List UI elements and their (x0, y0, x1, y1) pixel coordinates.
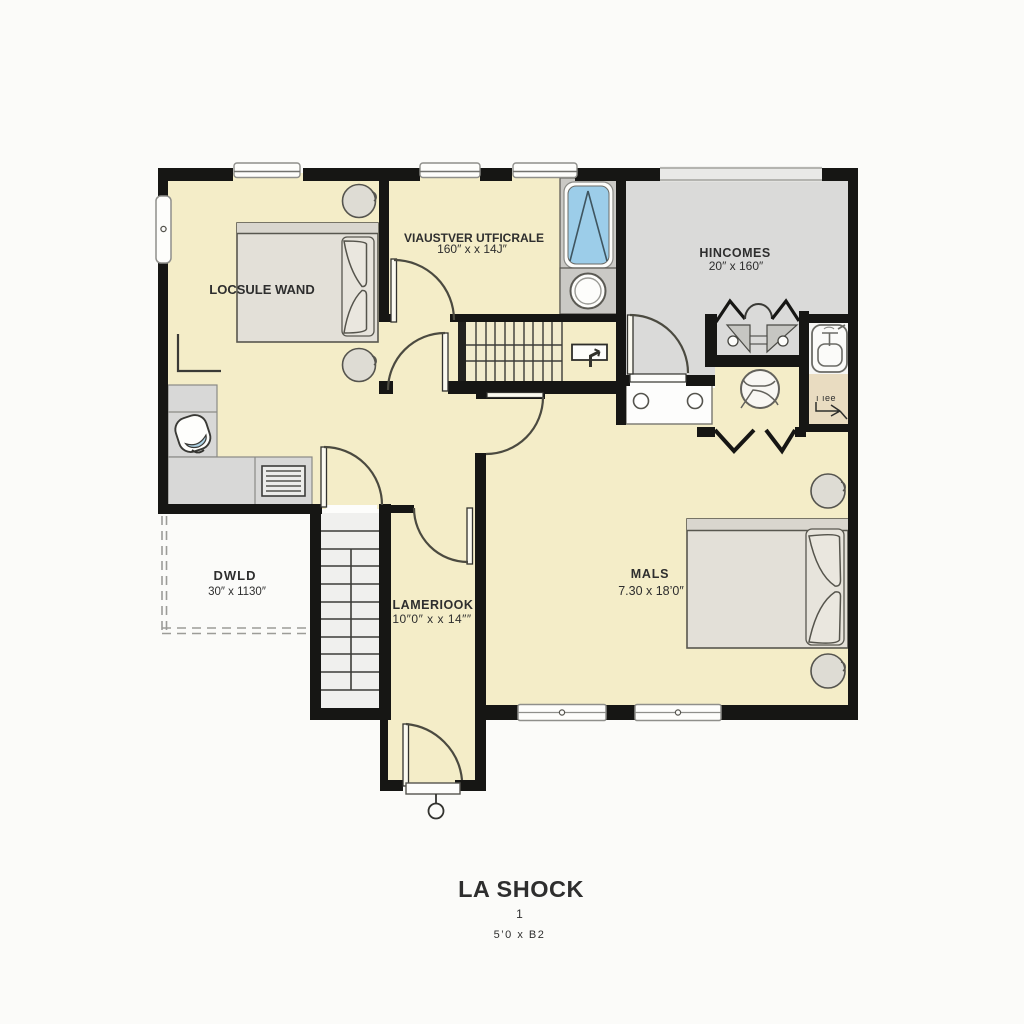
svg-text:7.30 x 18’0″: 7.30 x 18’0″ (618, 584, 684, 598)
svg-text:20″ x 160″: 20″ x 160″ (709, 259, 764, 273)
svg-text:LAMERIOOK: LAMERIOOK (393, 598, 474, 612)
svg-text:5’0 x B2: 5’0 x B2 (494, 929, 546, 941)
svg-text:30″ x 1130″: 30″ x 1130″ (208, 586, 266, 598)
svg-text:HINCOMES: HINCOMES (699, 246, 770, 260)
svg-text:10″0″ x x 14″″: 10″0″ x x 14″″ (392, 612, 472, 626)
svg-text:1: 1 (516, 907, 523, 921)
svg-text:160″ x x 14J″: 160″ x x 14J″ (437, 242, 508, 256)
svg-text:LOCSULE WAND: LOCSULE WAND (209, 282, 314, 297)
svg-text:MALS: MALS (631, 567, 670, 581)
svg-text:DWLD: DWLD (214, 568, 257, 583)
svg-text:ı ıee: ı ıee (816, 393, 836, 403)
svg-text:LA SHOCK: LA SHOCK (458, 876, 584, 902)
